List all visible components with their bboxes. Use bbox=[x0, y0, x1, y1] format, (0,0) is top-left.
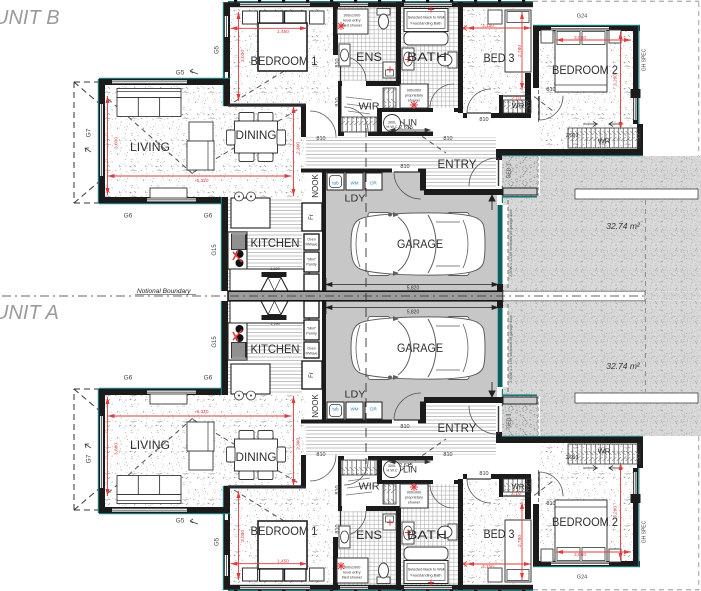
svg-text:Freestanding Bath: Freestanding Bath bbox=[410, 573, 441, 577]
svg-text:DR: DR bbox=[370, 407, 377, 412]
svg-text:BEDROOM 2: BEDROOM 2 bbox=[552, 65, 618, 77]
svg-text:Notional Boundary: Notional Boundary bbox=[137, 288, 191, 295]
svg-text:G5: G5 bbox=[176, 517, 185, 524]
svg-text:WR: WR bbox=[512, 101, 525, 110]
svg-text:G6: G6 bbox=[124, 374, 133, 381]
svg-text:BED 3: BED 3 bbox=[484, 529, 515, 541]
svg-text:810: 810 bbox=[335, 524, 341, 533]
svg-text:tiled shower: tiled shower bbox=[342, 23, 363, 27]
svg-text:GARAGE: GARAGE bbox=[397, 343, 443, 355]
svg-text:WR: WR bbox=[598, 137, 611, 146]
svg-text:DINING: DINING bbox=[236, 130, 277, 142]
svg-text:proprietary: proprietary bbox=[405, 495, 423, 499]
svg-text:810: 810 bbox=[443, 452, 452, 458]
svg-text:GH SPEC: GH SPEC bbox=[641, 48, 647, 71]
svg-text:G7: G7 bbox=[85, 454, 92, 463]
svg-text:BEDROOM 1: BEDROOM 1 bbox=[251, 56, 318, 68]
svg-text:NOOK: NOOK bbox=[311, 394, 320, 418]
svg-text:2,780: 2,780 bbox=[517, 45, 523, 57]
svg-text:DR: DR bbox=[370, 181, 377, 186]
svg-text:MWave: MWave bbox=[305, 242, 317, 246]
svg-text:G15: G15 bbox=[212, 336, 218, 348]
svg-text:level entry: level entry bbox=[343, 18, 360, 22]
svg-text:810: 810 bbox=[335, 97, 341, 106]
svg-text:2/910: 2/910 bbox=[566, 455, 579, 461]
svg-text:810: 810 bbox=[546, 501, 555, 507]
svg-text:2/910: 2/910 bbox=[566, 133, 579, 139]
svg-text:tub: tub bbox=[332, 407, 339, 412]
svg-text:LIVING: LIVING bbox=[130, 440, 170, 452]
svg-text:KITCHEN: KITCHEN bbox=[251, 344, 300, 356]
svg-text:NOOK: NOOK bbox=[311, 174, 320, 198]
svg-text:1,450: 1,450 bbox=[277, 29, 289, 35]
svg-text:Oven: Oven bbox=[307, 346, 316, 350]
svg-text:3,030: 3,030 bbox=[240, 50, 246, 62]
svg-text:GED 1: GED 1 bbox=[506, 413, 512, 428]
svg-text:"Mini": "Mini" bbox=[307, 326, 317, 330]
svg-text:2,360: 2,360 bbox=[296, 142, 302, 154]
svg-text:tiled shower: tiled shower bbox=[342, 575, 363, 579]
svg-text:G24: G24 bbox=[577, 574, 587, 580]
svg-text:tub: tub bbox=[332, 181, 339, 186]
svg-text:G24: G24 bbox=[577, 13, 587, 19]
svg-text:3,280: 3,280 bbox=[613, 74, 619, 86]
svg-text:3,030: 3,030 bbox=[240, 530, 246, 542]
svg-text:shower: shower bbox=[408, 500, 421, 504]
svg-text:Selected Back to Wall: Selected Back to Wall bbox=[408, 567, 445, 571]
svg-text:WM: WM bbox=[351, 407, 359, 412]
svg-text:WIR: WIR bbox=[359, 481, 380, 493]
svg-text:Fr: Fr bbox=[309, 214, 315, 220]
svg-text:UNIT A: UNIT A bbox=[0, 302, 59, 324]
svg-text:810: 810 bbox=[400, 164, 409, 170]
svg-text:proprietary: proprietary bbox=[405, 93, 423, 97]
svg-text:ENTRY: ENTRY bbox=[438, 423, 477, 435]
svg-text:"Mini": "Mini" bbox=[307, 257, 317, 261]
svg-text:5,820: 5,820 bbox=[407, 286, 420, 292]
svg-text:4,110: 4,110 bbox=[482, 564, 494, 570]
svg-text:2.50W x 2.14H sectional lift g: 2.50W x 2.14H sectional lift garage door bbox=[509, 315, 513, 383]
svg-text:G15: G15 bbox=[212, 244, 218, 256]
svg-text:LIVING: LIVING bbox=[130, 142, 170, 154]
svg-text:WR: WR bbox=[598, 447, 611, 456]
svg-text:G5: G5 bbox=[215, 537, 221, 546]
svg-text:ENS: ENS bbox=[356, 530, 382, 542]
svg-text:810: 810 bbox=[479, 117, 488, 123]
svg-text:KITCHEN: KITCHEN bbox=[251, 238, 300, 250]
svg-text:WR: WR bbox=[512, 482, 525, 491]
svg-text:BED 3: BED 3 bbox=[484, 53, 515, 65]
svg-text:G5: G5 bbox=[176, 69, 185, 76]
svg-text:UNIT B: UNIT B bbox=[0, 7, 60, 29]
svg-text:LDY: LDY bbox=[345, 193, 366, 205]
svg-text:810: 810 bbox=[316, 452, 325, 458]
svg-text:GH SPEC: GH SPEC bbox=[641, 520, 647, 543]
svg-text:H.W.C: H.W.C bbox=[387, 125, 398, 129]
svg-text:3,060: 3,060 bbox=[574, 35, 586, 41]
svg-text:900x1000: 900x1000 bbox=[344, 13, 361, 17]
svg-text:5,820: 5,820 bbox=[407, 310, 420, 316]
svg-text:32.74 m²: 32.74 m² bbox=[606, 221, 641, 231]
svg-text:2,10: 2,10 bbox=[511, 491, 521, 497]
svg-text:Fr: Fr bbox=[309, 372, 315, 378]
svg-text:900x900: 900x900 bbox=[407, 490, 422, 494]
svg-text:MWave: MWave bbox=[305, 351, 317, 355]
svg-text:BEDROOM 1: BEDROOM 1 bbox=[251, 526, 318, 538]
svg-text:Pantry: Pantry bbox=[306, 331, 317, 335]
svg-text:level entry: level entry bbox=[343, 570, 360, 574]
svg-text:900x1000: 900x1000 bbox=[344, 565, 361, 569]
svg-text:G5: G5 bbox=[215, 45, 221, 54]
svg-text:6,320: 6,320 bbox=[196, 178, 208, 184]
svg-text:2.50W x 2.14H sectional lift g: 2.50W x 2.14H sectional lift garage door bbox=[509, 209, 513, 277]
svg-text:4,110: 4,110 bbox=[482, 23, 494, 29]
svg-text:1,190: 1,190 bbox=[270, 322, 280, 326]
svg-text:3,280: 3,280 bbox=[613, 506, 619, 518]
svg-text:Selected Back to Wall: Selected Back to Wall bbox=[408, 15, 445, 19]
svg-text:LDY: LDY bbox=[345, 389, 366, 401]
svg-text:GARAGE: GARAGE bbox=[397, 239, 443, 251]
svg-text:WM: WM bbox=[351, 181, 359, 186]
svg-text:G6: G6 bbox=[204, 374, 213, 381]
svg-text:2,360: 2,360 bbox=[296, 438, 302, 450]
svg-text:810: 810 bbox=[335, 485, 341, 494]
svg-text:2,10: 2,10 bbox=[511, 96, 521, 102]
svg-text:810: 810 bbox=[400, 424, 409, 430]
svg-text:900x900: 900x900 bbox=[407, 88, 422, 92]
svg-text:300L: 300L bbox=[388, 464, 396, 468]
svg-text:BATH: BATH bbox=[407, 530, 447, 542]
svg-text:G7: G7 bbox=[85, 128, 92, 137]
svg-text:G6: G6 bbox=[204, 212, 213, 219]
svg-text:BEDROOM 2: BEDROOM 2 bbox=[552, 517, 618, 529]
svg-text:2,780: 2,780 bbox=[517, 535, 523, 547]
svg-text:6,320: 6,320 bbox=[196, 409, 208, 415]
svg-text:810: 810 bbox=[443, 136, 452, 142]
svg-text:3,600: 3,600 bbox=[114, 137, 120, 149]
svg-text:Pantry: Pantry bbox=[306, 262, 317, 266]
svg-text:810: 810 bbox=[546, 87, 555, 93]
svg-text:3,060: 3,060 bbox=[574, 552, 586, 558]
svg-text:BATH: BATH bbox=[407, 52, 447, 64]
svg-text:810: 810 bbox=[479, 471, 488, 477]
svg-text:H.W.C: H.W.C bbox=[387, 468, 398, 472]
svg-text:1,450: 1,450 bbox=[277, 559, 289, 565]
svg-text:WIR: WIR bbox=[359, 101, 380, 113]
svg-text:2,615: 2,615 bbox=[399, 463, 413, 469]
svg-text:GED 1: GED 1 bbox=[506, 163, 512, 178]
svg-text:2,615: 2,615 bbox=[399, 125, 413, 131]
svg-text:32.74 m²: 32.74 m² bbox=[606, 361, 641, 371]
svg-text:DINING: DINING bbox=[236, 452, 277, 464]
svg-text:ENS: ENS bbox=[356, 52, 382, 64]
svg-text:shower: shower bbox=[408, 98, 421, 102]
svg-text:Freestanding Bath: Freestanding Bath bbox=[410, 21, 441, 25]
svg-text:300L: 300L bbox=[388, 120, 396, 124]
svg-text:G6: G6 bbox=[124, 212, 133, 219]
svg-text:810: 810 bbox=[316, 136, 325, 142]
svg-text:3,600: 3,600 bbox=[114, 443, 120, 455]
svg-text:1,190: 1,190 bbox=[270, 267, 280, 271]
svg-text:ENTRY: ENTRY bbox=[438, 159, 477, 171]
svg-text:810: 810 bbox=[335, 58, 341, 67]
svg-text:Oven: Oven bbox=[307, 237, 316, 241]
